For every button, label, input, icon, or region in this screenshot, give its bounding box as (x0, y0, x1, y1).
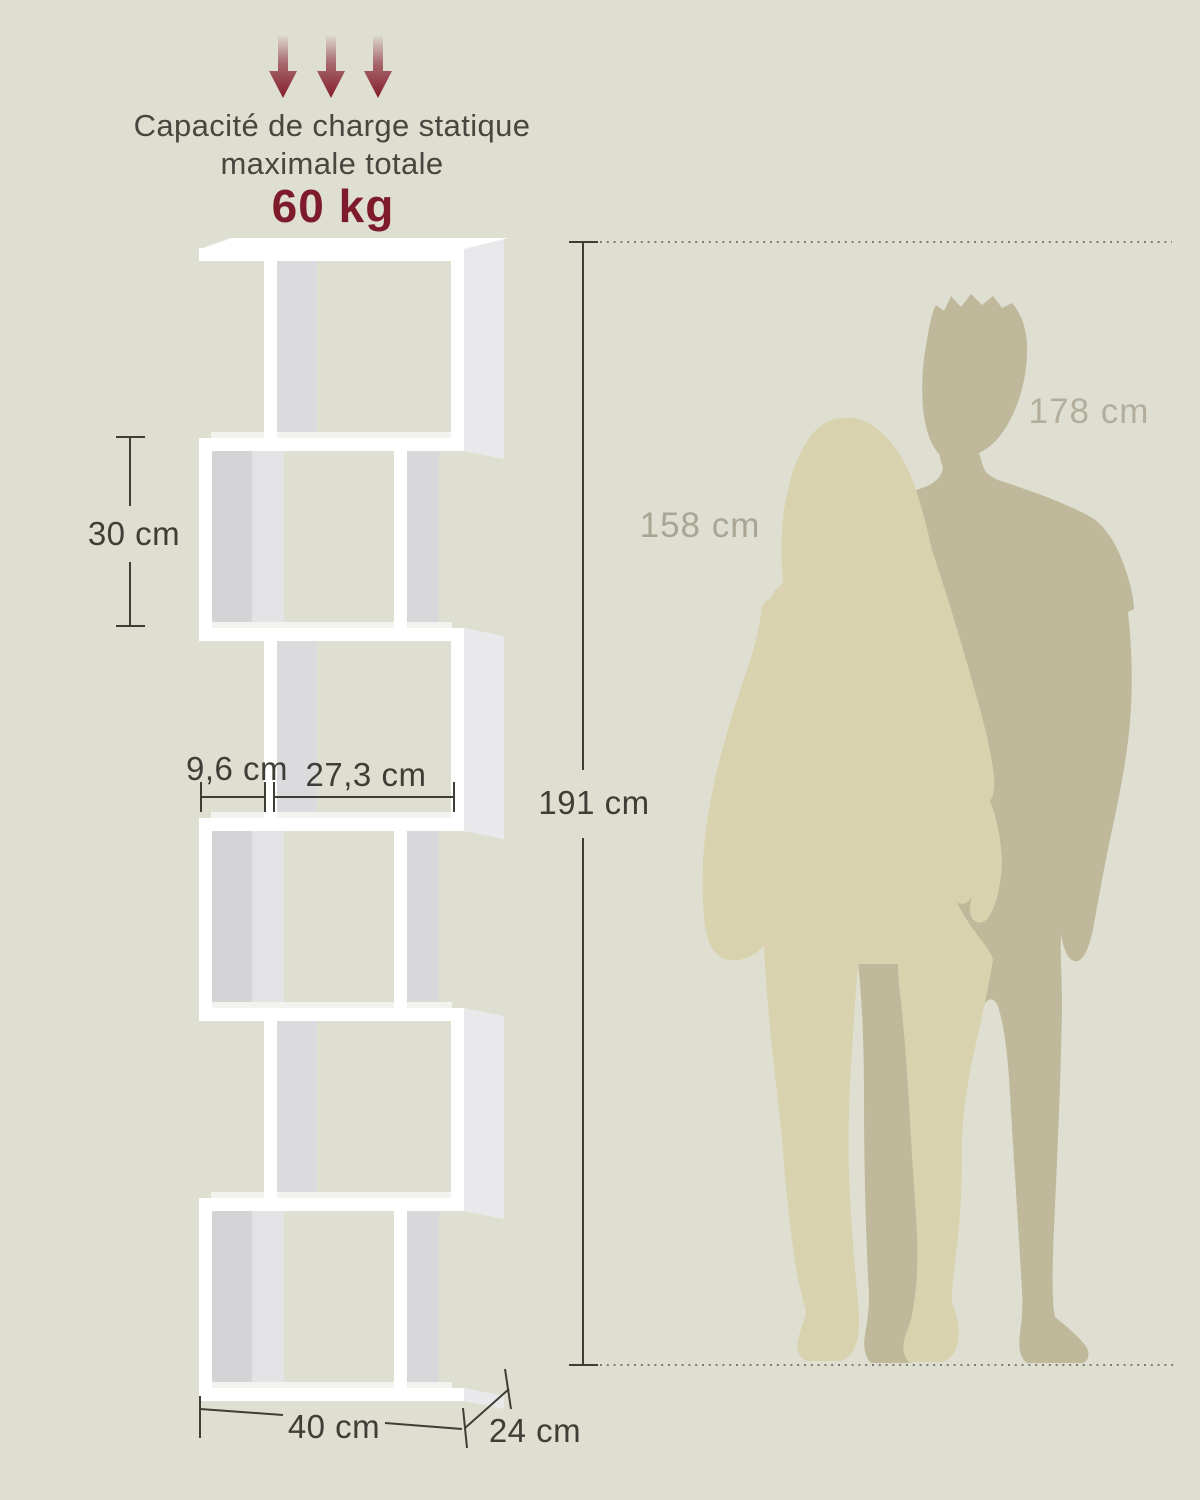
shelf-left-wall (199, 1208, 212, 1391)
shelf-board (199, 438, 464, 451)
shelf-right-wall (451, 638, 464, 821)
shelf-right-wall (451, 258, 464, 441)
load-capacity-value: 60 kg (272, 180, 395, 232)
load-capacity-arrows (269, 36, 392, 98)
shelf-divider (394, 448, 407, 631)
interior-face (252, 831, 284, 1008)
product-dimension-diagram: Capacité de charge statique maximale tot… (0, 0, 1200, 1500)
side-panel (464, 1008, 504, 1219)
floor-sliver (211, 812, 452, 818)
total-height-label: 191 cm (538, 784, 649, 821)
interior-face (212, 451, 252, 628)
woman-height-label: 158 cm (640, 506, 761, 545)
floor-sliver (211, 1192, 452, 1198)
side-offset-label: 9,6 cm (186, 750, 288, 787)
caption-line-2: maximale totale (220, 146, 443, 181)
interior-face (407, 1211, 439, 1388)
shelf-right-wall (451, 1018, 464, 1201)
side-panel (464, 238, 504, 459)
interior-face (277, 261, 317, 438)
interior-face (212, 1211, 252, 1388)
floor-sliver (211, 1002, 452, 1008)
interior-face (252, 1211, 284, 1388)
side-panel (464, 628, 504, 839)
caption-line-1: Capacité de charge statique (134, 108, 531, 143)
shelf-divider (264, 1018, 277, 1201)
interior-face (212, 831, 252, 1008)
shelf-left-wall (199, 448, 212, 631)
interior-face (252, 451, 284, 628)
compartment-height-label: 30 cm (88, 515, 180, 552)
floor-sliver (211, 432, 452, 438)
diagram-canvas: Capacité de charge statique maximale tot… (0, 0, 1200, 1500)
shelf-board (199, 628, 464, 641)
shelf-top-surface (199, 238, 508, 249)
shelf-board (199, 818, 464, 831)
shelf-left-wall (199, 828, 212, 1011)
shelf-board (199, 1388, 464, 1401)
interior-face (407, 451, 439, 628)
shelf-divider (394, 828, 407, 1011)
interior-face (407, 831, 439, 1008)
depth-label: 24 cm (489, 1412, 581, 1449)
shelf-divider (394, 1208, 407, 1391)
shelf-divider (264, 258, 277, 441)
compartment-width-label: 27,3 cm (306, 756, 427, 793)
shelf-board (199, 1008, 464, 1021)
floor-sliver (211, 622, 452, 628)
man-height-label: 178 cm (1029, 392, 1150, 431)
total-width-label: 40 cm (288, 1408, 380, 1445)
shelf-board (199, 1198, 464, 1211)
shelf-board (199, 248, 464, 261)
interior-face (277, 1021, 317, 1198)
